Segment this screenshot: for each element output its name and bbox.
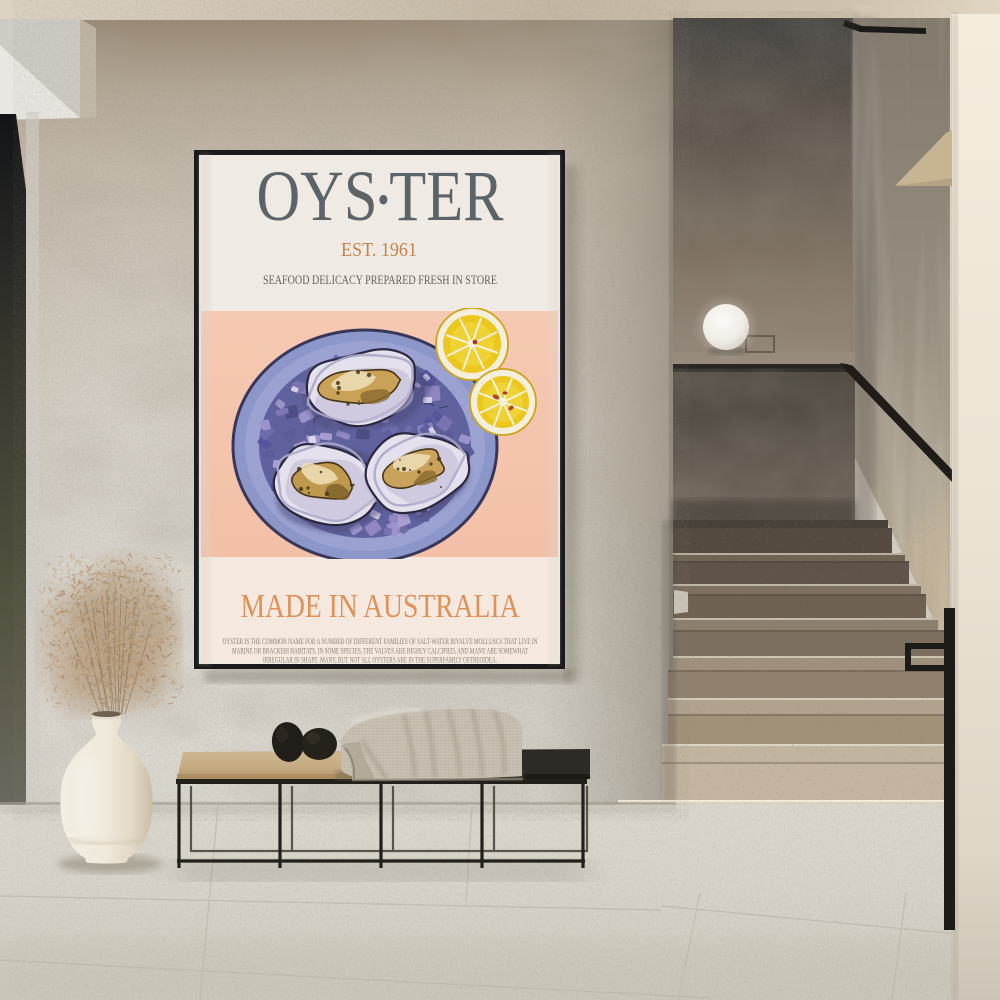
svg-text:MADE IN AUSTRALIA: MADE IN AUSTRALIA	[241, 588, 520, 625]
svg-text:OYSTER IS THE COMMON NAME FOR: OYSTER IS THE COMMON NAME FOR A NUMBER O…	[223, 637, 538, 646]
svg-text:IRREGULAR IN SHAPE. MANY, BUT: IRREGULAR IN SHAPE. MANY, BUT NOT ALL OY…	[263, 656, 497, 665]
svg-text:EST. 1961: EST. 1961	[341, 239, 417, 261]
svg-text:MARINE OR BRACKISH HABITATS. I: MARINE OR BRACKISH HABITATS. IN SOME SPE…	[232, 647, 528, 656]
svg-text:SEAFOOD DELICACY PREPARED FRES: SEAFOOD DELICACY PREPARED FRESH IN STORE	[263, 272, 497, 287]
